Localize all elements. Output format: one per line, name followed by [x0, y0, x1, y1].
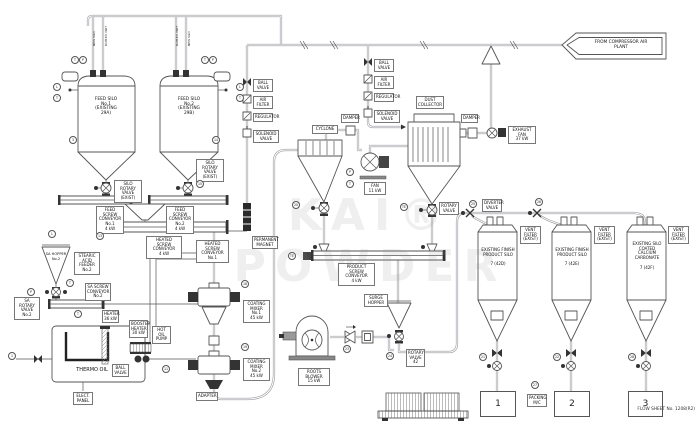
instrument-bubble: 27 — [531, 381, 539, 389]
label-dc-rotary-valve: ROTARY VALVE — [439, 202, 459, 215]
instrument-bubble: T — [236, 94, 244, 102]
instrument-bubble: TE — [288, 252, 296, 260]
instrument-bubble: T — [66, 279, 74, 287]
label-product-screw: PRODUCT SCREW CONVEYOR 4 kW — [338, 263, 375, 286]
label-coating-mixer-1: COATING MIXER No.1 45 kW — [243, 300, 270, 323]
instrument-bubble: L — [48, 230, 56, 238]
mixer-funnel — [202, 307, 226, 324]
riser-label-new-silo-1: NEW SILO — [92, 31, 96, 46]
label-adapter: ADAPTER — [196, 392, 218, 401]
label-feed-silo-1: FEED SILO No.1 (EXISTING 29A) — [80, 98, 132, 117]
silo-rotary-valve-1-symbol — [94, 182, 111, 196]
packing-station-2: 2 — [554, 391, 590, 417]
exhaust-stack — [482, 46, 500, 64]
label-exhaust-fan: EXHAUST FAN 37 kW — [508, 126, 536, 144]
expansion-joint — [209, 336, 219, 345]
instrument-bubble: 13 — [96, 232, 104, 240]
instrument-bubble: L — [53, 83, 61, 91]
label-damper-1: DAMPER — [341, 114, 359, 123]
label-damper-2: DAMPER — [461, 114, 478, 123]
riser-labels: NEW SILO DUPLEX UNIT DUPLEX UNIT NEW SIL… — [92, 26, 191, 46]
instrument-bubble: T — [346, 180, 354, 188]
instrument-bubble: 11 — [162, 365, 170, 373]
product-silo-c — [627, 217, 666, 341]
label-thermo-oil: THERMO OIL — [70, 368, 114, 373]
product-silo-a — [478, 217, 517, 341]
instrument-bubble: 26 — [535, 198, 543, 206]
label-silo-rv-1: SILO ROTARY VALVE (EXIST) — [114, 180, 142, 203]
label-permanent-magnet: PERMANENT MAGNET — [252, 236, 278, 249]
coating-mixer-1 — [188, 283, 240, 306]
silo-a-discharge-valves — [487, 349, 502, 371]
instrument-bubble: 24 — [386, 352, 394, 360]
label-screw-3: HEATED SCREW CONVEYOR No.1 — [196, 240, 229, 263]
instrument-bubble: P — [27, 288, 35, 296]
instrument-bubble: 14 — [212, 136, 220, 144]
label-silo-c: EXISTING SILO COATED CALCIUM CARBONATE 7… — [629, 242, 665, 270]
damper-1-symbol — [346, 126, 355, 135]
exhaust-fan-symbol — [487, 128, 506, 138]
damper-2-symbol — [468, 128, 477, 138]
main-fan-symbol — [360, 153, 389, 179]
adapter-symbol — [205, 380, 223, 389]
label-feed-screw-2: FEED SCREW CONVEYOR No.2 4 kW — [166, 206, 194, 234]
label-solenoid-valve-2: SOLENOID VALVE — [374, 110, 400, 123]
silo-rotary-valve-2-symbol — [176, 182, 193, 196]
label-heated-screw: HEATED SCREW CONVEYOR 4 kW — [146, 236, 182, 259]
dc-rotary-valve-symbol — [419, 204, 437, 217]
label-silo-a: EXISTING FINISH PRODUCT SILO 7 (42D) — [480, 248, 516, 267]
flag-text: FROM COMPRESSOR AIR PLANT — [579, 41, 663, 50]
sa-rotary-valve-symbol — [45, 287, 67, 299]
riser-label-new-silo-2: NEW SILO — [187, 31, 191, 46]
heat-exchanger-unit — [378, 393, 468, 421]
sa-hopper-vessel — [42, 245, 70, 284]
label-surge-hopper: SURGE HOPPER — [364, 294, 388, 307]
label-solenoid-valve-1: SOLENOID VALVE — [253, 130, 279, 143]
instrument-bubble: TE — [400, 203, 408, 211]
label-ball-valve-thermo: BALL VALVE — [112, 364, 129, 377]
instrument-bubble: T — [53, 94, 61, 102]
label-air-filter-2: AIR FILTER — [374, 76, 394, 89]
label-feed-screw-1: FEED SCREW CONVEYOR No.1 4 kW — [96, 206, 124, 234]
label-heater: HEATER 36 kW — [102, 310, 119, 323]
instrument-bubble: T — [201, 56, 209, 64]
feed-screw-conveyor-2 — [148, 195, 229, 205]
hot-oil-pump-icon — [135, 356, 142, 363]
label-roots-blower: ROOTS BLOWER 15 kW — [298, 368, 330, 386]
instrument-bubble: 18 — [241, 280, 249, 288]
immersion-heater-icon — [102, 328, 108, 364]
instrument-bubble: 3 — [69, 136, 77, 144]
booster-heater-icon — [130, 344, 151, 352]
label-coating-mixer-2: COATING MIXER No.2 45 kW — [243, 358, 270, 381]
label-regulator-2: REGULATOR — [374, 93, 394, 102]
label-hot-oil-pump: HOT OIL PUMP — [152, 326, 171, 344]
instrument-bubble: 20 — [292, 201, 300, 209]
label-silo-rv-2: SILO ROTARY VALVE (EXIST) — [196, 159, 224, 182]
label-sa-feeder: STEARIC ACID FEEDER No.2 — [74, 252, 100, 275]
instrument-bubble: T — [74, 310, 82, 318]
merge-hopper — [125, 204, 165, 220]
label-regulator-1: REGULATOR — [253, 113, 273, 122]
instrument-bubble: L — [236, 83, 244, 91]
instrument-bubble: P — [209, 56, 217, 64]
label-silo-b: EXISTING FINISH PRODUCT SILO 7 (42E) — [554, 248, 590, 267]
instrument-bubble: 23 — [343, 345, 351, 353]
instrument-bubble: T — [71, 56, 79, 64]
instrument-bubble: 22 — [553, 353, 561, 361]
label-diverter-valve: DIVERTER VALVE — [482, 199, 502, 212]
label-vent-filter-b: VENT FILTER (EXIST) — [594, 226, 615, 244]
instrument-bubble: 19 — [241, 343, 249, 351]
instrument-bubble: 25 — [469, 200, 477, 208]
riser-label-duplex-1: DUPLEX UNIT — [104, 26, 108, 46]
pipe-union — [362, 331, 373, 343]
process-flow-diagram: KAI® POWDER — [0, 0, 700, 428]
permanent-magnet-symbol — [243, 203, 251, 231]
label-ball-valve-2: BALL VALVE — [374, 59, 394, 72]
instrument-bubble: P — [79, 56, 87, 64]
label-sa-hopper: SA HOPPER No.2 — [43, 252, 69, 261]
cyclone-vessel — [298, 140, 342, 202]
label-air-filter-1: AIR FILTER — [253, 96, 273, 109]
silo2-vent-filter-icon — [214, 72, 230, 81]
product-screw-conveyor — [303, 244, 446, 261]
label-sa-rv: SA ROTARY VALVE No.2 — [14, 297, 40, 320]
label-main-fan: FAN 11 kW — [364, 182, 386, 195]
roots-blower-symbol — [279, 316, 335, 360]
label-feed-silo-2: FEED SILO No.2 (EXISTING 29B) — [163, 98, 215, 117]
surge-hopper-vessel — [387, 301, 411, 328]
label-sa-screw: SA SCREW CONVEYOR No.2 — [85, 283, 111, 301]
coating-mixer-2 — [188, 351, 240, 374]
label-elect-panel: ELECT. PANEL — [73, 392, 93, 405]
feed-silo-1-vessel — [62, 70, 135, 180]
silo-c-discharge-valves — [636, 349, 651, 371]
riser-label-duplex-2: DUPLEX UNIT — [175, 26, 179, 46]
packing-station-3: 3 — [628, 391, 663, 417]
packing-station-1: 1 — [480, 391, 516, 417]
label-rotary-valve-42: ROTARY VALVE 42 — [406, 349, 425, 367]
instrument-bubble: P — [346, 168, 354, 176]
flow-sheet-number: FLOW SHEET No. 1208(R2) — [598, 407, 695, 412]
silo-b-discharge-valves — [561, 349, 576, 371]
label-vent-filter-c: VENT FILTER (EXIST) — [668, 226, 689, 244]
check-valve-symbol — [345, 331, 355, 343]
label-cyclone: CYCLONE — [312, 125, 338, 134]
label-booster-heater: BOOSTER HEATER 30 kW — [129, 320, 148, 338]
label-dust-collector: DUST COLLECTOR — [416, 96, 444, 109]
instrument-bubble: 15 — [196, 180, 204, 188]
instrument-bubble: 1 — [8, 352, 16, 360]
instrument-bubble: 21 — [479, 353, 487, 361]
label-vent-filter-a: VENT FILTER (EXIST) — [520, 226, 541, 244]
instrument-bubble: 28 — [628, 353, 636, 361]
label-ball-valve-1: BALL VALVE — [253, 79, 273, 92]
product-silo-b — [552, 217, 591, 341]
silo1-vent-filter-icon — [62, 72, 78, 81]
cyclone-rotary-valve-symbol — [311, 202, 329, 216]
label-packing-mc: PACKING M/C — [527, 394, 547, 407]
dust-collector-vessel — [408, 114, 466, 204]
